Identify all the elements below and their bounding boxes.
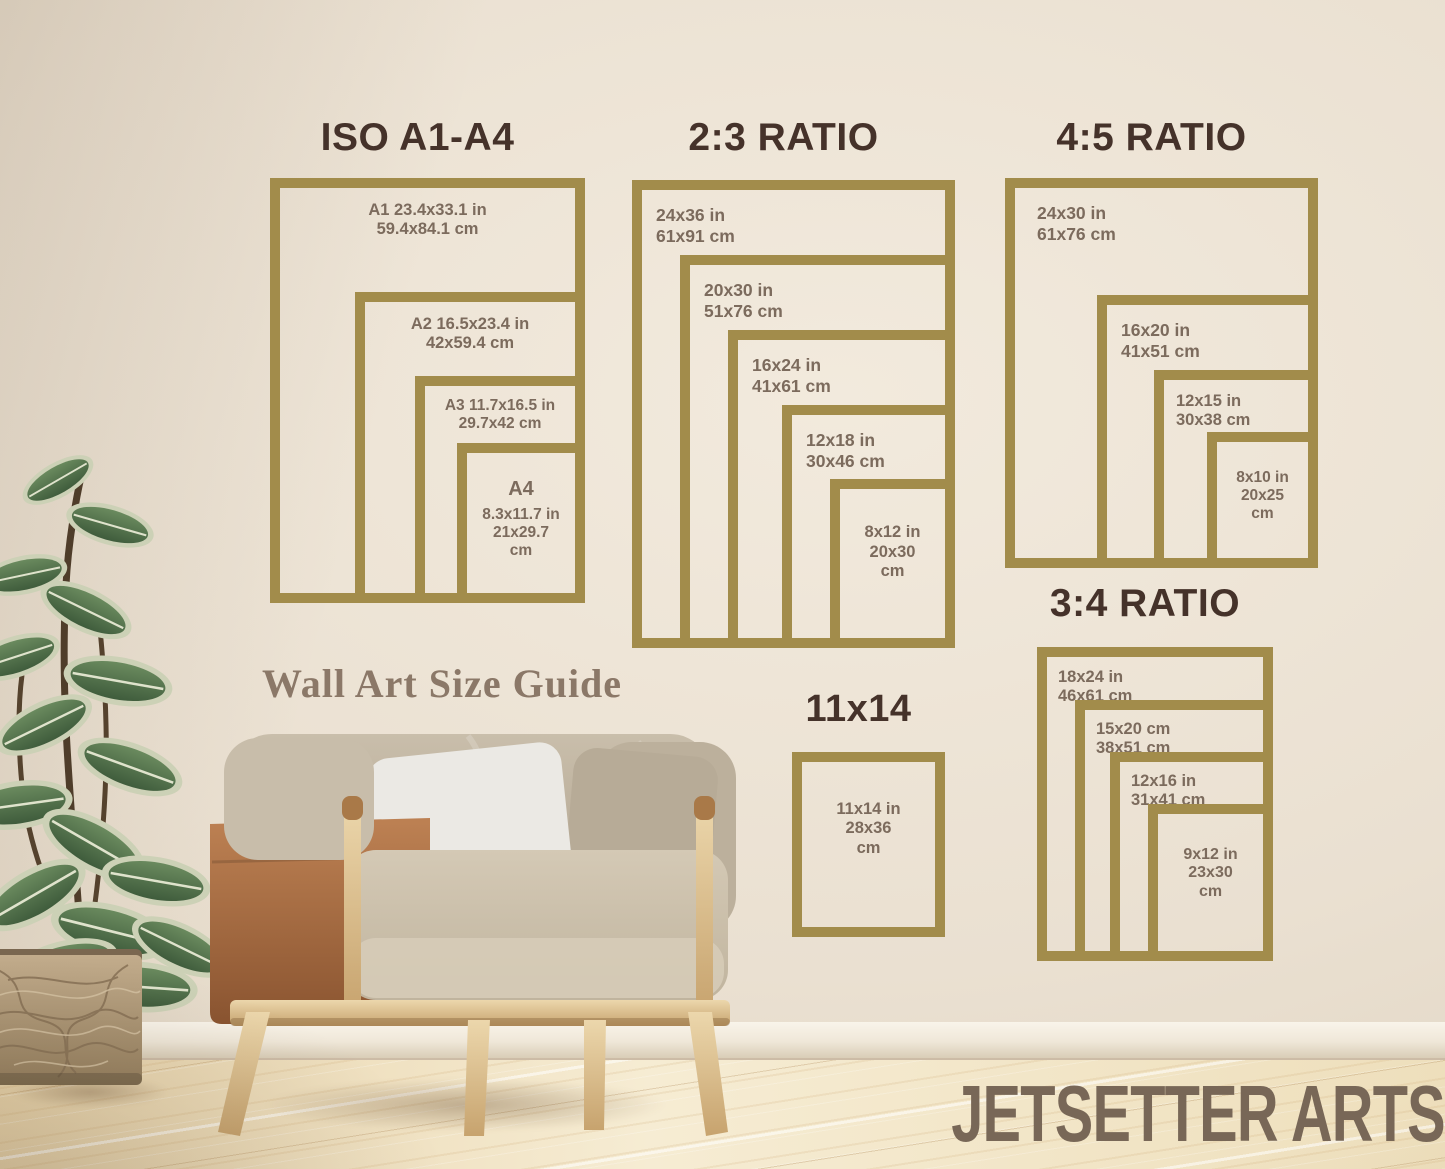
size-label-8x12: 8x12 in 20x30 cm (840, 523, 945, 581)
size-line: cm (1217, 505, 1308, 523)
frame-18x24: 18x24 in 46x61 cm 15x20 cm 38x51 cm 12x1… (1037, 647, 1273, 961)
brand-watermark: JETSETTER ARTS (951, 1074, 1445, 1154)
left-arm-post (344, 800, 361, 1014)
size-line: 20x30 (840, 543, 945, 562)
size-line: cm (467, 542, 575, 560)
group-title-4-5: 4:5 RATIO (995, 118, 1308, 159)
size-label-a1: A1 23.4x33.1 in 59.4x84.1 cm (280, 201, 575, 240)
size-line: 16x24 in (752, 355, 831, 376)
frame-a4: A4 8.3x11.7 in 21x29.7 cm (457, 443, 575, 593)
size-line: 28x36 (802, 819, 935, 838)
size-line: A3 11.7x16.5 in (425, 397, 575, 415)
size-label-16x24: 16x24 in 41x61 cm (752, 355, 831, 396)
size-line: 15x20 cm (1096, 720, 1170, 739)
size-label-a3: A3 11.7x16.5 in 29.7x42 cm (425, 397, 575, 434)
size-label-a4: A4 8.3x11.7 in 21x29.7 cm (467, 478, 575, 560)
room-scene: ISO A1-A4 A1 23.4x33.1 in 59.4x84.1 cm A… (0, 0, 1445, 1169)
size-label-12x18: 12x18 in 30x46 cm (806, 430, 885, 471)
size-line: 8.3x11.7 in (467, 506, 575, 524)
size-line: A1 23.4x33.1 in (280, 201, 575, 220)
size-line: 41x61 cm (752, 376, 831, 397)
chair-legs (218, 1012, 728, 1136)
frame-24x36: 24x36 in 61x91 cm 20x30 in 51x76 cm 16x2… (632, 180, 955, 648)
size-line: 16x20 in (1121, 320, 1200, 341)
size-line: 9x12 in (1158, 846, 1263, 865)
frame-9x12: 9x12 in 23x30 cm (1148, 804, 1263, 951)
size-line: A2 16.5x23.4 in (365, 315, 575, 334)
right-arm-post (696, 800, 713, 1014)
size-line: 29.7x42 cm (425, 415, 575, 433)
size-line: 42x59.4 cm (365, 334, 575, 353)
size-line: 20x25 (1217, 487, 1308, 505)
guide-caption: Wall Art Size Guide (226, 660, 658, 707)
size-label-9x12: 9x12 in 23x30 cm (1158, 846, 1263, 903)
armchair-illustration (168, 712, 758, 1142)
size-line: 23x30 (1158, 864, 1263, 883)
group-title-iso: ISO A1-A4 (250, 118, 585, 159)
size-line: 61x91 cm (656, 226, 735, 247)
size-line: 11x14 in (802, 800, 935, 819)
size-line: 61x76 cm (1037, 224, 1116, 245)
size-line: 8x12 in (840, 523, 945, 542)
size-line: 18x24 in (1058, 668, 1132, 687)
size-line: 12x16 in (1131, 772, 1205, 791)
size-line: 24x36 in (656, 205, 735, 226)
frame-8x12: 8x12 in 20x30 cm (830, 479, 945, 638)
size-line: 41x51 cm (1121, 341, 1200, 362)
size-label-24x36: 24x36 in 61x91 cm (656, 205, 735, 246)
group-title-3-4: 3:4 RATIO (1027, 584, 1263, 625)
size-label-11x14: 11x14 in 28x36 cm (802, 800, 935, 858)
size-line: A4 (467, 478, 575, 502)
frame-11x14: 11x14 in 28x36 cm (792, 752, 945, 937)
group-title-2-3: 2:3 RATIO (622, 118, 945, 159)
size-line: cm (840, 562, 945, 581)
frame-24x30: 24x30 in 61x76 cm 16x20 in 41x51 cm 12x1… (1005, 178, 1318, 568)
size-line: 20x30 in (704, 280, 783, 301)
size-line: cm (1158, 883, 1263, 902)
size-line: 12x18 in (806, 430, 885, 451)
frame-8x10: 8x10 in 20x25 cm (1207, 432, 1308, 558)
size-line: 30x46 cm (806, 451, 885, 472)
size-label-8x10: 8x10 in 20x25 cm (1217, 469, 1308, 524)
size-line: 21x29.7 (467, 524, 575, 542)
size-label-20x30: 20x30 in 51x76 cm (704, 280, 783, 321)
size-line: 51x76 cm (704, 301, 783, 322)
group-title-11x14: 11x14 (772, 690, 945, 730)
size-line: 59.4x84.1 cm (280, 220, 575, 239)
size-line: 24x30 in (1037, 203, 1116, 224)
size-label-16x20: 16x20 in 41x51 cm (1121, 320, 1200, 361)
size-line: 8x10 in (1217, 469, 1308, 487)
size-label-12x15: 12x15 in 30x38 cm (1176, 392, 1250, 431)
size-label-a2: A2 16.5x23.4 in 42x59.4 cm (365, 315, 575, 354)
size-label-24x30: 24x30 in 61x76 cm (1037, 203, 1116, 244)
frame-a1: A1 23.4x33.1 in 59.4x84.1 cm A2 16.5x23.… (270, 178, 585, 603)
size-line: cm (802, 839, 935, 858)
size-line: 12x15 in (1176, 392, 1250, 411)
size-line: 30x38 cm (1176, 411, 1250, 430)
